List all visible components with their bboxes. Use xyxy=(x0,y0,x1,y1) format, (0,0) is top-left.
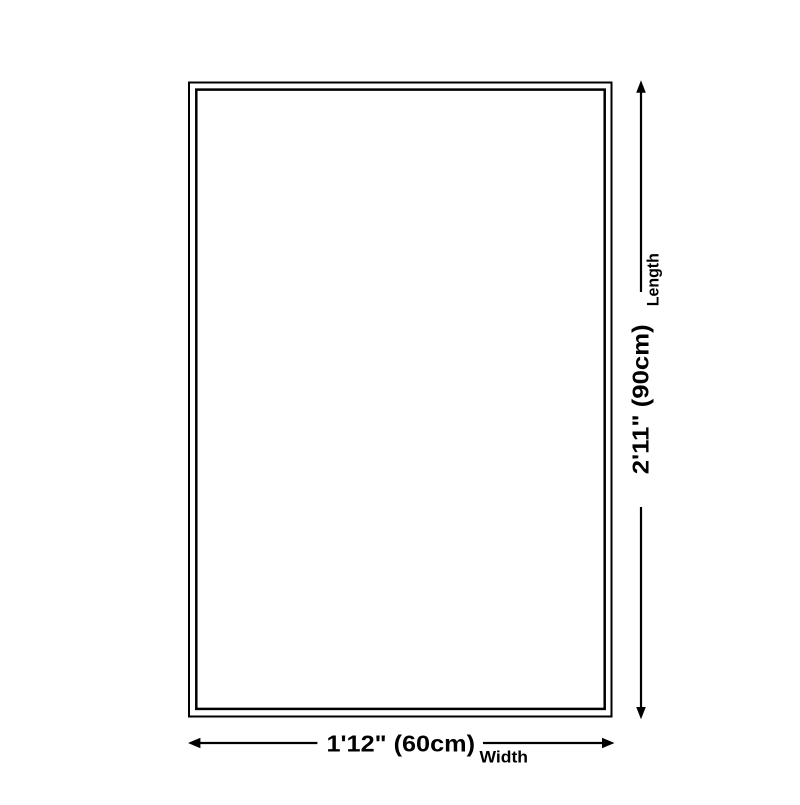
svg-text:1'12" (60cm): 1'12" (60cm) xyxy=(327,731,476,757)
svg-text:Length: Length xyxy=(644,253,663,306)
svg-text:2'11" (90cm): 2'11" (90cm) xyxy=(628,324,654,474)
svg-text:Width: Width xyxy=(480,747,529,766)
